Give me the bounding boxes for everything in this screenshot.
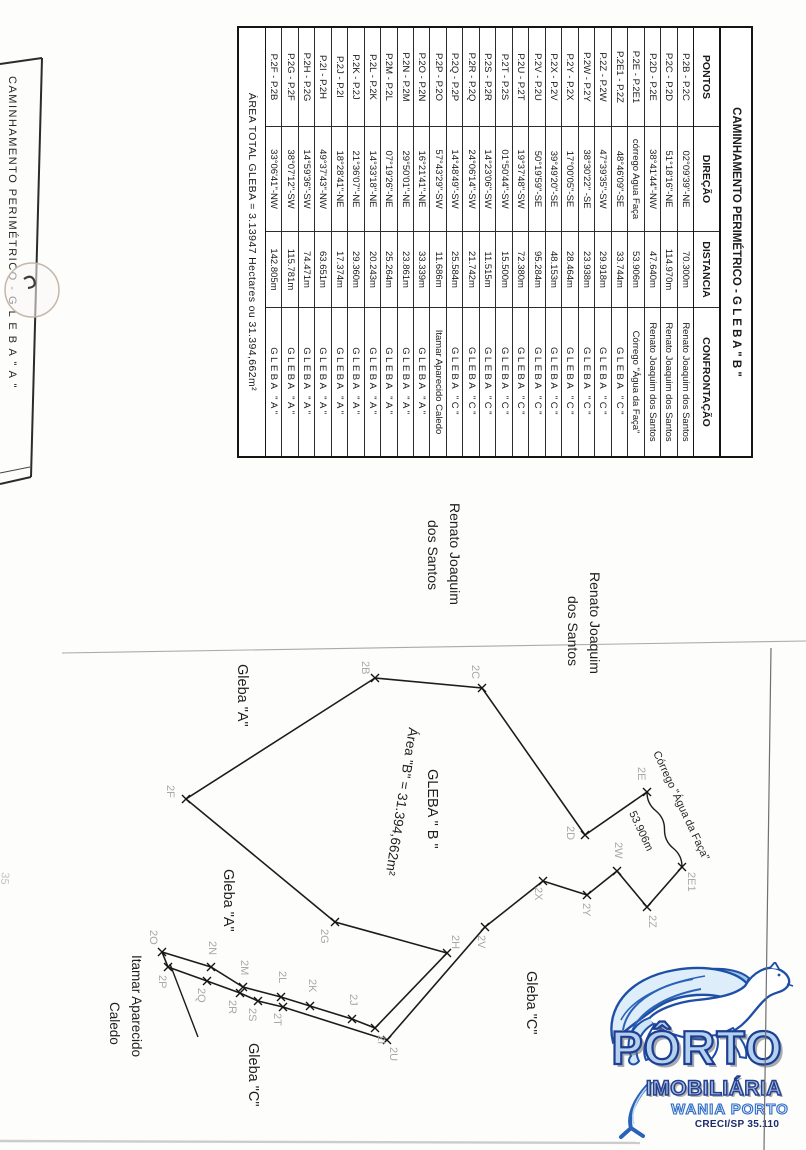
table-cell: GLEBA "A"	[282, 308, 297, 456]
vertex-marker-2S	[254, 997, 262, 1005]
logo-line2: IMOBILIÁRIA	[625, 1077, 803, 1101]
table-row: P.2Y - P.2X17°00'05"-SE28.464mGLEBA "C"	[561, 28, 577, 456]
table-cell: 74.471m	[299, 232, 314, 308]
table-cell: P.2R - P.2Q	[463, 28, 478, 127]
table-cell: P.2Q - P.2P	[447, 28, 462, 127]
vertex-marker-2D	[581, 831, 589, 839]
table-cell: 142.805m	[266, 232, 281, 308]
table-cell: P.2M - P.2L	[381, 28, 396, 127]
map-label-11: Gleba "C"	[245, 1043, 261, 1107]
map-label-13: Caledo	[107, 1002, 122, 1045]
vertex-marker-2M	[239, 983, 247, 991]
table-cell: GLEBA "C"	[579, 308, 594, 456]
vertex-marker-2W	[613, 867, 621, 875]
table-row: P.2O - P.2N16°21'41"-NE33.339mGLEBA "A"	[413, 28, 429, 456]
table-cell: 57°43'29"-SW	[431, 127, 446, 232]
vertex-marker-2R	[236, 989, 244, 997]
map-label-2: Renato Joaquim	[587, 572, 603, 674]
table-cell: 23.861m	[398, 232, 413, 308]
table-header-row: PONTOSDIREÇÃODISTANCIACONFRONTAÇÃO	[693, 28, 719, 456]
table-cell: 50°19'59"-SE	[529, 127, 544, 232]
vertex-label-2F: 2F	[164, 785, 176, 798]
table-cell: P.2K - P.2J	[348, 28, 363, 127]
table-cell: P.2T - P.2S	[496, 28, 511, 127]
vertex-marker-2B	[371, 674, 379, 682]
table-cell: 28.464m	[562, 232, 577, 308]
table-cell: 39°49'20"-SE	[546, 127, 561, 232]
left-strip-title: CAMINHAMENTO PERIMÉTRICO - G L E B A " A…	[6, 76, 19, 389]
map-label-3: dos Santos	[565, 596, 581, 666]
table-cell: GLEBA "A"	[315, 308, 330, 456]
table-row: P.2I - P.2H49°37'43"-NW63.651mGLEBA "A"	[314, 28, 330, 456]
table-row: P.2E - P.2E1córrego Agua Faça53.906mCórr…	[627, 28, 643, 456]
table-cell: GLEBA "A"	[414, 308, 429, 456]
area-total-row: ÁREA TOTAL GLEBA = 3.13947 Hectares ou 3…	[239, 28, 265, 456]
table-cell: GLEBA "C"	[562, 308, 577, 456]
table-row: P.2K - P.2J21°36'07"-NE29.360mGLEBA "A"	[347, 28, 363, 456]
vertex-label-2P: 2P	[156, 975, 168, 988]
vertex-label-2E1: 2E1	[685, 872, 697, 892]
vertex-label-2O: 2O	[147, 930, 159, 945]
table-row: P.2C - P.2D51°18'16"-NE114.970mRenato Jo…	[660, 28, 676, 456]
vertex-label-2R: 2R	[226, 1000, 238, 1014]
table-cell: 17°00'05"-SE	[562, 127, 577, 232]
table-cell: 23.938m	[579, 232, 594, 308]
table-cell: 38°41'44"-NW	[645, 127, 660, 232]
table-cell: P.2H - P.2G	[299, 28, 314, 127]
table-cell: 18°28'41"-NE	[332, 127, 347, 232]
table-row: P.2N - P.2M29°50'01"-NE23.861mGLEBA "A"	[397, 28, 413, 456]
table-cell: P.2U - P.2T	[513, 28, 528, 127]
table-cell: P.2Z - P.2W	[595, 28, 610, 127]
vertex-marker-2L	[277, 993, 285, 1001]
table-cell: 63.651m	[315, 232, 330, 308]
table-cell: 01°50'44"-SW	[496, 127, 511, 232]
table-cell: 29°50'01"-NE	[398, 127, 413, 232]
parcel-boundary	[375, 678, 647, 835]
table-cell: Renato Joaquim dos Santos	[645, 308, 660, 456]
table-cell: P.2W - P.2Y	[579, 28, 594, 127]
vertex-label-2M: 2M	[238, 960, 250, 975]
table-cell: 25.584m	[447, 232, 462, 308]
vertex-label-2L: 2L	[276, 971, 288, 983]
vertex-label-2I: 2I	[375, 1035, 387, 1044]
neighbour-line	[170, 964, 198, 1037]
column-header-4: CONFRONTAÇÃO	[694, 308, 719, 456]
map-label-12: Itamar Aparecido	[129, 955, 144, 1057]
table-cell: 47.640m	[645, 232, 660, 308]
bottom-scan-edge	[0, 1141, 640, 1143]
vertex-marker-2X	[539, 877, 547, 885]
table-row: P.2T - P.2S01°50'44"-SW15.500mGLEBA "C"	[495, 28, 511, 456]
table-cell: 14°33'18"-NE	[365, 127, 380, 232]
vertex-label-2E: 2E	[635, 767, 647, 780]
table-cell: 20.243m	[365, 232, 380, 308]
table-cell: P.2B - P.2C	[678, 28, 693, 127]
table-cell: 11.515m	[480, 232, 495, 308]
vertex-marker-2G	[331, 918, 339, 926]
table-cell: GLEBA "A"	[332, 308, 347, 456]
table-cell: Renato Joaquim dos Santos	[661, 308, 676, 456]
stream-line	[647, 792, 682, 867]
table-cell: Renato Joaquim dos Santos	[678, 308, 693, 456]
logo-line3: WANIA PORTO	[663, 1101, 797, 1118]
handwriting-mark: 35	[0, 872, 11, 885]
table-cell: 72.380m	[513, 232, 528, 308]
map-label-5: Gleba "A"	[220, 869, 236, 932]
table-cell: P.2L - P.2K	[365, 28, 380, 127]
table-cell: 53.906m	[628, 232, 643, 308]
table-body: P.2B - P.2C02°09'39"-NE70.300mRenato Joa…	[265, 28, 693, 456]
vertex-marker-2Z	[643, 903, 651, 911]
vertex-marker-2F	[182, 795, 190, 803]
vertex-marker-2P	[164, 963, 172, 971]
table-cell: 33.339m	[414, 232, 429, 308]
crease-line-horizontal	[62, 641, 806, 653]
table-cell: 51°18'16"-NE	[661, 127, 676, 232]
table-cell: 19°37'48"-SW	[513, 127, 528, 232]
vertex-label-2W: 2W	[612, 842, 624, 859]
map-label-0: Renato Joaquim	[447, 503, 463, 605]
table-cell: 29.360m	[348, 232, 363, 308]
table-cell: 14°23'06"-SW	[480, 127, 495, 232]
table-row: P.2Z - P.2W47°39'35"-SW29.918mGLEBA "C"	[594, 28, 610, 456]
survey-table-rotated: CAMINHAMENTO PERIMÉTRICO - G L E B A " B…	[237, 26, 753, 458]
vertex-label-2N: 2N	[206, 941, 218, 955]
vertex-label-2D: 2D	[564, 826, 576, 840]
table-cell: P.2G - P.2F	[282, 28, 297, 127]
table-row: P.2V - P.2U50°19'59"-SE95.284mGLEBA "C"	[528, 28, 544, 456]
table-row: P.2R - P.2Q24°06'14"-SW21.742mGLEBA "C"	[462, 28, 478, 456]
vertex-label-2H: 2H	[449, 935, 461, 949]
stamp-circle	[5, 263, 59, 317]
table-cell: P.2E - P.2E1	[628, 28, 643, 127]
table-cell: 70.300m	[678, 232, 693, 308]
table-cell: 25.264m	[381, 232, 396, 308]
table-row: P.2W - P.2Y38°30'22" -SE23.938mGLEBA "C"	[578, 28, 594, 456]
table-row: P.2Q - P.2P14°48'49"-SW25.584mGLEBA "C"	[446, 28, 462, 456]
map-label-1: dos Santos	[425, 520, 441, 590]
vertex-marker-2E1	[678, 863, 686, 871]
vertex-label-2V: 2V	[475, 935, 487, 949]
porto-logo: PÔRTO IMOBILIÁRIA WANIA PORTO CRECI/SP 3…	[591, 960, 803, 1150]
table-cell: 11.686m	[431, 232, 446, 308]
table-row: P.2M - P.2L07°19'26"-NE25.264mGLEBA "A"	[380, 28, 396, 456]
table-cell: P.2J - P.2I	[332, 28, 347, 127]
table-row: P.2B - P.2C02°09'39"-NE70.300mRenato Joa…	[677, 28, 693, 456]
table-cell: 21°36'07"-NE	[348, 127, 363, 232]
table-cell: GLEBA "C"	[513, 308, 528, 456]
table-row: P.2H - P.2G14°59'36"-SW74.471mGLEBA "A"	[298, 28, 314, 456]
vertex-label-2Y: 2Y	[580, 903, 592, 917]
vertex-marker-2Q	[203, 977, 211, 985]
table-cell: P.2D - P.2E	[645, 28, 660, 127]
table-row: P.2J - P.2I18°28'41"-NE17.374mGLEBA "A"	[331, 28, 347, 456]
map-label-7: GLEBA " B "	[424, 769, 440, 849]
column-header-3: DISTANCIA	[694, 232, 719, 308]
table-cell: GLEBA "C"	[463, 308, 478, 456]
table-cell: P.2O - P.2N	[414, 28, 429, 127]
column-header-2: DIREÇÃO	[694, 127, 719, 232]
table-cell: 38°07'12"-SW	[282, 127, 297, 232]
table-cell: GLEBA "C"	[612, 308, 627, 456]
table-cell: 02°09'39"-NE	[678, 127, 693, 232]
table-cell: P.2E1 - P.2Z	[612, 28, 627, 127]
table-cell: 14°59'36"-SW	[299, 127, 314, 232]
table-cell: 29.918m	[595, 232, 610, 308]
table-cell: GLEBA "A"	[299, 308, 314, 456]
table-cell: 48°46'09"-SE	[612, 127, 627, 232]
vertex-label-2J: 2J	[347, 994, 359, 1006]
table-row: P.2G - P.2F38°07'12"-SW115.781mGLEBA "A"	[281, 28, 297, 456]
table-row: P.2X - P.2V39°49'20"-SE48.153mGLEBA "C"	[545, 28, 561, 456]
vertex-label-2S: 2S	[246, 1008, 258, 1021]
vertex-label-2Q: 2Q	[195, 988, 207, 1003]
map-label-4: Gleba "A"	[234, 664, 250, 727]
vertex-marker-2E	[643, 788, 651, 796]
table-cell: GLEBA "C"	[546, 308, 561, 456]
table-cell: P.2V - P.2U	[529, 28, 544, 127]
table-cell: GLEBA "C"	[447, 308, 462, 456]
table-cell: Córrego "Água da Faça"	[628, 308, 643, 456]
vertex-label-2K: 2K	[306, 979, 318, 993]
table-cell: GLEBA "A"	[365, 308, 380, 456]
table-cell: 33°06'41"-NW	[266, 127, 281, 232]
vertex-marker-2H	[443, 949, 451, 957]
table-cell: P.2N - P.2M	[398, 28, 413, 127]
table-row: P.2L - P.2K14°33'18"-NE20.243mGLEBA "A"	[364, 28, 380, 456]
table-cell: GLEBA "C"	[529, 308, 544, 456]
table-row: P.2F - P.2B33°06'41"-NW142.805mGLEBA "A"	[265, 28, 281, 456]
left-strip-box	[0, 58, 42, 484]
table-cell: 17.374m	[332, 232, 347, 308]
vertex-marker-2I	[371, 1024, 379, 1032]
table-row: P.2U - P.2T19°37'48"-SW72.380mGLEBA "C"	[512, 28, 528, 456]
table-cell: 48.153m	[546, 232, 561, 308]
map-label-10: Gleba "C"	[523, 971, 539, 1035]
vertex-label-2Z: 2Z	[646, 915, 658, 928]
table-cell: 115.781m	[282, 232, 297, 308]
table-row: P.2D - P.2E38°41'44"-NW47.640mRenato Joa…	[644, 28, 660, 456]
vertex-label-2T: 2T	[271, 1013, 283, 1026]
table-row: P.2P - P.2O57°43'29"-SW11.686mItamar Apa…	[430, 28, 446, 456]
map-label-9: 53.906m	[626, 809, 655, 853]
vertex-label-2C: 2C	[469, 665, 481, 679]
table-cell: GLEBA "A"	[348, 308, 363, 456]
vertex-marker-2J	[348, 1015, 356, 1023]
table-cell: GLEBA "A"	[398, 308, 413, 456]
table-cell: GLEBA "A"	[381, 308, 396, 456]
table-row: P.2S - P.2R14°23'06"-SW11.515mGLEBA "C"	[479, 28, 495, 456]
logo-name: PÔRTO	[591, 1020, 803, 1075]
vertex-marker-2T	[279, 1003, 287, 1011]
table-cell: Itamar Aparecido Caledo	[431, 308, 446, 456]
table-cell: 49°37'43"-NW	[315, 127, 330, 232]
table-cell: córrego Agua Faça	[628, 127, 643, 232]
table-cell: 14°48'49"-SW	[447, 127, 462, 232]
table-cell: 95.284m	[529, 232, 544, 308]
table-cell: 24°06'14"-SW	[463, 127, 478, 232]
table-cell: 21.742m	[463, 232, 478, 308]
table-title: CAMINHAMENTO PERIMÉTRICO - G L E B A " B…	[719, 28, 751, 456]
vertex-marker-2C	[478, 684, 486, 692]
table-cell: 47°39'35"-SW	[595, 127, 610, 232]
vertex-marker-2Y	[583, 891, 591, 899]
table-cell: GLEBA "C"	[595, 308, 610, 456]
vertex-marker-2V	[481, 923, 489, 931]
column-header-1: PONTOS	[694, 28, 719, 127]
vertex-label-2B: 2B	[359, 661, 371, 674]
table-cell: 114.970m	[661, 232, 676, 308]
table-cell: 33.744m	[612, 232, 627, 308]
table-cell: P.2P - P.2O	[431, 28, 446, 127]
vertex-marker-2K	[306, 1002, 314, 1010]
vertex-marker-2U	[383, 1036, 391, 1044]
table-cell: P.2S - P.2R	[480, 28, 495, 127]
table-cell: P.2F - P.2B	[266, 28, 281, 127]
table-cell: 38°30'22" -SE	[579, 127, 594, 232]
vertex-label-2G: 2G	[318, 929, 330, 944]
table-cell: GLEBA "C"	[496, 308, 511, 456]
map-label-8: Córrego "Água da Faça"	[650, 749, 712, 863]
vertex-marker-2O	[158, 948, 166, 956]
vertex-marker-2N	[207, 963, 215, 971]
table-cell: P.2X - P.2V	[546, 28, 561, 127]
table-cell: 07°19'26"-NE	[381, 127, 396, 232]
table-cell: 16°21'41"-NE	[414, 127, 429, 232]
table-cell: 15.500m	[496, 232, 511, 308]
logo-line4: CRECI/SP 35.110	[677, 1119, 797, 1130]
vertex-label-2X: 2X	[532, 887, 544, 901]
table-row: P.2E1 - P.2Z48°46'09"-SE33.744mGLEBA "C"	[611, 28, 627, 456]
table-cell: P.2I - P.2H	[315, 28, 330, 127]
table-cell: P.2C - P.2D	[661, 28, 676, 127]
table-cell: P.2Y - P.2X	[562, 28, 577, 127]
vertex-label-2U: 2U	[387, 1047, 399, 1061]
table-cell: GLEBA "A"	[266, 308, 281, 456]
map-label-6: Área "B" = 31.394,662m²	[383, 727, 421, 878]
survey-table: CAMINHAMENTO PERIMÉTRICO - G L E B A " B…	[237, 26, 753, 458]
table-cell: GLEBA "C"	[480, 308, 495, 456]
